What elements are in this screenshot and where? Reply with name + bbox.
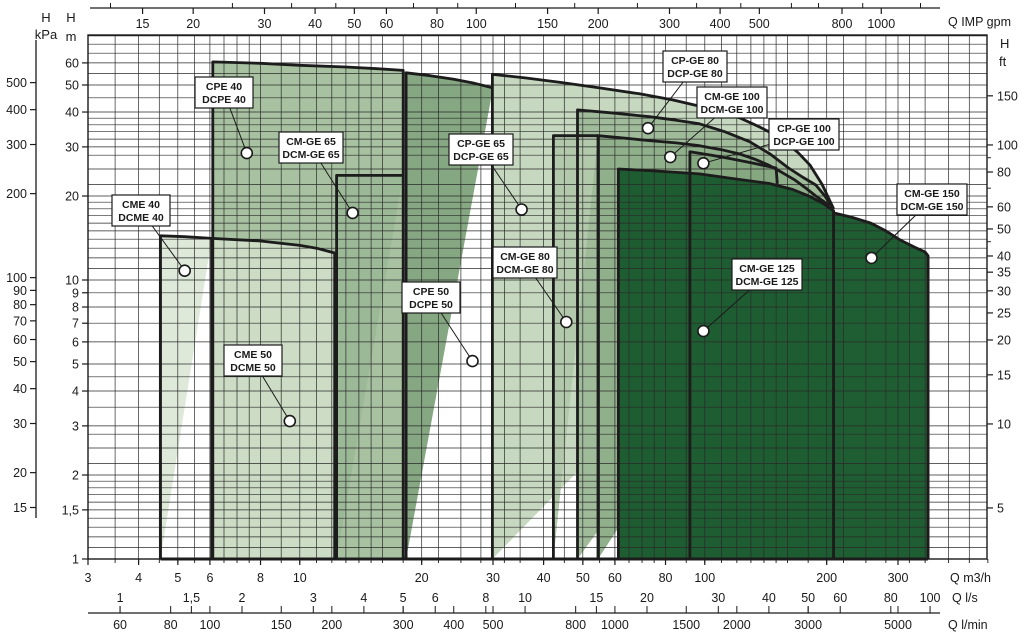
axis-q-lmin: 6080100150200300400500800100015002000300… <box>88 606 988 632</box>
ls-tick-label: 80 <box>884 591 898 605</box>
kpa-tick-label: 60 <box>13 333 27 347</box>
pump-name-line2: DCPE 50 <box>409 299 453 311</box>
pump-name-line1: CM-GE 100 <box>704 91 760 103</box>
pump-label-cm-ge-65: CM-GE 65DCM-GE 65 <box>279 132 343 163</box>
m-tick-label: 60 <box>65 56 79 70</box>
ft-tick-label: 30 <box>997 284 1011 298</box>
m-tick-label: 1,5 <box>62 503 79 517</box>
m-tick-label: 7 <box>72 317 79 331</box>
m3h-tick-label: 5 <box>174 571 181 585</box>
duty-point-dot-cm-ge-150 <box>866 252 877 263</box>
axis-h-ft: 150100806050403530252015105Hft <box>987 36 1018 515</box>
duty-point-dot-cm-ge-125 <box>698 326 709 337</box>
lmin-tick-label: 5000 <box>884 618 912 632</box>
m3h-tick-label: 8 <box>257 571 264 585</box>
pump-name-line1: CM-GE 80 <box>500 251 550 263</box>
axis-q-ls: 11,52345681015203040506080100Q l/s <box>117 591 978 613</box>
kpa-tick-label: 80 <box>13 298 27 312</box>
gpm-tick-label: 80 <box>430 17 444 31</box>
pump-label-cme-40: CME 40DCME 40 <box>112 195 170 226</box>
ft-tick-label: 15 <box>997 368 1011 382</box>
ls-tick-label: 5 <box>400 591 407 605</box>
lmin-tick-label: 60 <box>113 618 127 632</box>
lmin-tick-label: 300 <box>393 618 414 632</box>
m-tick-label: 8 <box>72 301 79 315</box>
kpa-tick-label: 70 <box>13 314 27 328</box>
duty-point-dot-cp-ge-100 <box>698 158 709 169</box>
pump-label-cpe-40: CPE 40DCPE 40 <box>195 77 253 108</box>
ft-tick-label: 50 <box>997 222 1011 236</box>
lmin-tick-label: 2000 <box>723 618 751 632</box>
pump-name-line1: CP-GE 80 <box>671 55 719 67</box>
ft-tick-label: 60 <box>997 200 1011 214</box>
gpm-tick-label: 300 <box>659 17 680 31</box>
m-tick-label: 5 <box>72 357 79 371</box>
duty-point-dot-cm-ge-100 <box>665 152 676 163</box>
pump-name-line1: CM-GE 150 <box>904 188 960 200</box>
m3h-tick-label: 10 <box>293 571 307 585</box>
pump-name-line2: DCM-GE 80 <box>496 264 553 276</box>
gpm-tick-label: 500 <box>749 17 770 31</box>
gpm-tick-label: 800 <box>832 17 853 31</box>
m-tick-label: 9 <box>72 286 79 300</box>
pump-name-line2: DCM-GE 150 <box>900 201 963 213</box>
ft-tick-label: 10 <box>997 417 1011 431</box>
axis-h-kpa: 500400300200100908070605040302015HkPa <box>6 10 58 518</box>
kpa-axis-unit: kPa <box>35 27 58 42</box>
kpa-tick-label: 200 <box>6 187 27 201</box>
m-tick-label: 3 <box>72 419 79 433</box>
m-tick-label: 50 <box>65 78 79 92</box>
envelope-fill-cme-40 <box>161 236 212 559</box>
ls-tick-label: 3 <box>310 591 317 605</box>
m-tick-label: 6 <box>72 335 79 349</box>
lmin-tick-label: 100 <box>199 618 220 632</box>
pump-name-line1: CM-GE 125 <box>739 263 795 275</box>
duty-point-dot-cm-ge-80 <box>561 317 572 328</box>
lmin-tick-label: 400 <box>443 618 464 632</box>
kpa-tick-label: 30 <box>13 417 27 431</box>
gpm-tick-label: 30 <box>258 17 272 31</box>
m3h-tick-label: 3 <box>85 571 92 585</box>
m3h-tick-label: 40 <box>537 571 551 585</box>
gpm-tick-label: 50 <box>347 17 361 31</box>
ls-tick-label: 8 <box>482 591 489 605</box>
gpm-tick-label: 20 <box>186 17 200 31</box>
gpm-tick-label: 40 <box>308 17 322 31</box>
ls-tick-label: 6 <box>432 591 439 605</box>
pump-name-line2: DCP-GE 80 <box>667 68 723 80</box>
ls-tick-label: 40 <box>762 591 776 605</box>
pump-name-line2: DCME 40 <box>118 212 164 224</box>
pump-name-line1: CP-GE 65 <box>457 138 505 150</box>
ls-axis-unit: Q l/s <box>952 591 978 605</box>
m-axis-unit: m <box>66 29 77 44</box>
kpa-tick-label: 400 <box>6 103 27 117</box>
ls-tick-label: 20 <box>640 591 654 605</box>
m3h-tick-label: 50 <box>576 571 590 585</box>
pump-label-cp-ge-65: CP-GE 65DCP-GE 65 <box>449 134 513 165</box>
kpa-axis-title: H <box>41 10 50 25</box>
gpm-tick-label: 400 <box>710 17 731 31</box>
ls-tick-label: 4 <box>360 591 367 605</box>
lmin-tick-label: 200 <box>321 618 342 632</box>
ft-tick-label: 5 <box>997 501 1004 515</box>
pump-name-line2: DCPE 40 <box>202 94 246 106</box>
m3h-tick-label: 20 <box>415 571 429 585</box>
pump-label-cpe-50: CPE 50DCPE 50 <box>402 282 460 313</box>
pump-label-cp-ge-80: CP-GE 80DCP-GE 80 <box>663 51 727 82</box>
m3h-tick-label: 30 <box>486 571 500 585</box>
duty-point-dot-cme-50 <box>284 416 295 427</box>
pump-name-line1: CPE 40 <box>206 81 242 93</box>
ft-axis-title: H <box>1000 36 1009 51</box>
pump-label-cm-ge-100: CM-GE 100DCM-GE 100 <box>697 87 767 118</box>
pump-name-line1: CME 50 <box>234 349 272 361</box>
kpa-tick-label: 300 <box>6 138 27 152</box>
pump-selection-chart-page: 152030405060801001502003004005008001000Q… <box>0 0 1022 635</box>
pump-name-line2: DCM-GE 125 <box>735 276 798 288</box>
ft-tick-label: 25 <box>997 306 1011 320</box>
m-axis-title: H <box>66 10 75 25</box>
lmin-tick-label: 500 <box>483 618 504 632</box>
pump-label-cm-ge-150: CM-GE 150DCM-GE 150 <box>897 184 967 215</box>
ft-tick-label: 20 <box>997 333 1011 347</box>
envelope-fill-cm-ge-150 <box>834 213 929 559</box>
m3h-tick-label: 100 <box>694 571 715 585</box>
ls-tick-label: 1 <box>117 591 124 605</box>
pump-label-cp-ge-100: CP-GE 100DCP-GE 100 <box>769 119 839 150</box>
m-tick-label: 4 <box>72 385 79 399</box>
ls-tick-label: 30 <box>711 591 725 605</box>
lmin-tick-label: 1000 <box>601 618 629 632</box>
gpm-tick-label: 100 <box>466 17 487 31</box>
ls-tick-label: 100 <box>920 591 941 605</box>
m3h-tick-label: 200 <box>816 571 837 585</box>
ls-tick-label: 2 <box>239 591 246 605</box>
pump-name-line2: DCM-GE 65 <box>282 149 339 161</box>
m-tick-label: 20 <box>65 190 79 204</box>
gpm-tick-label: 200 <box>588 17 609 31</box>
pump-range-chart: 152030405060801001502003004005008001000Q… <box>0 0 1022 635</box>
pump-name-line2: DCP-GE 65 <box>453 151 509 163</box>
m3h-tick-label: 6 <box>206 571 213 585</box>
ls-tick-label: 50 <box>801 591 815 605</box>
lmin-tick-label: 80 <box>164 618 178 632</box>
m-tick-label: 1 <box>72 553 79 567</box>
m-tick-label: 30 <box>65 140 79 154</box>
pump-label-cm-ge-125: CM-GE 125DCM-GE 125 <box>732 259 802 290</box>
pump-label-cme-50: CME 50DCME 50 <box>224 345 282 376</box>
gpm-tick-label: 150 <box>537 17 558 31</box>
pump-name-line1: CM-GE 65 <box>286 136 336 148</box>
kpa-tick-label: 500 <box>6 76 27 90</box>
gpm-axis-unit: Q IMP gpm <box>948 15 1011 29</box>
ft-axis-unit: ft <box>999 54 1007 69</box>
m3h-tick-label: 300 <box>888 571 909 585</box>
duty-point-dot-cme-40 <box>179 265 190 276</box>
kpa-tick-label: 15 <box>13 501 27 515</box>
pump-name-line2: DCM-GE 100 <box>700 104 763 116</box>
ft-tick-label: 35 <box>997 266 1011 280</box>
ft-tick-label: 100 <box>997 138 1018 152</box>
pump-name-line2: DCME 50 <box>230 362 276 374</box>
gpm-tick-label: 15 <box>136 17 150 31</box>
pump-name-line2: DCP-GE 100 <box>773 136 834 148</box>
duty-point-dot-cpe-40 <box>241 148 252 159</box>
m3h-tick-label: 80 <box>659 571 673 585</box>
ft-tick-label: 40 <box>997 249 1011 263</box>
ls-tick-label: 1,5 <box>183 591 200 605</box>
ls-tick-label: 10 <box>518 591 532 605</box>
pump-name-line1: CME 40 <box>122 199 160 211</box>
axis-q-m3h: 3456810203040506080100200300Q m3/h <box>85 559 992 585</box>
pump-label-cm-ge-80: CM-GE 80DCM-GE 80 <box>493 247 557 278</box>
axis-h-m: 605040302010987654321,51Hm <box>62 10 88 567</box>
axis-q-imp-gpm: 152030405060801001502003004005008001000Q… <box>90 3 1011 31</box>
lmin-tick-label: 800 <box>565 618 586 632</box>
duty-point-dot-cp-ge-65 <box>516 204 527 215</box>
m3h-axis-unit: Q m3/h <box>950 571 991 585</box>
ft-tick-label: 80 <box>997 165 1011 179</box>
ls-tick-label: 15 <box>589 591 603 605</box>
duty-point-dot-cm-ge-65 <box>347 207 358 218</box>
gpm-tick-label: 60 <box>379 17 393 31</box>
lmin-axis-unit: Q l/min <box>948 618 988 632</box>
m-tick-label: 2 <box>72 469 79 483</box>
pump-name-line1: CP-GE 100 <box>777 123 831 135</box>
duty-point-dot-cpe-50 <box>467 356 478 367</box>
kpa-tick-label: 90 <box>13 284 27 298</box>
kpa-tick-label: 50 <box>13 355 27 369</box>
ls-tick-label: 60 <box>833 591 847 605</box>
lmin-tick-label: 3000 <box>794 618 822 632</box>
m3h-tick-label: 60 <box>608 571 622 585</box>
lmin-tick-label: 150 <box>271 618 292 632</box>
m3h-tick-label: 4 <box>135 571 142 585</box>
kpa-tick-label: 20 <box>13 466 27 480</box>
pump-name-line1: CPE 50 <box>413 286 449 298</box>
lmin-tick-label: 1500 <box>672 618 700 632</box>
gpm-tick-label: 1000 <box>867 17 895 31</box>
ft-tick-label: 150 <box>997 89 1018 103</box>
duty-point-dot-cp-ge-80 <box>643 123 654 134</box>
m-tick-label: 40 <box>65 106 79 120</box>
kpa-tick-label: 40 <box>13 382 27 396</box>
